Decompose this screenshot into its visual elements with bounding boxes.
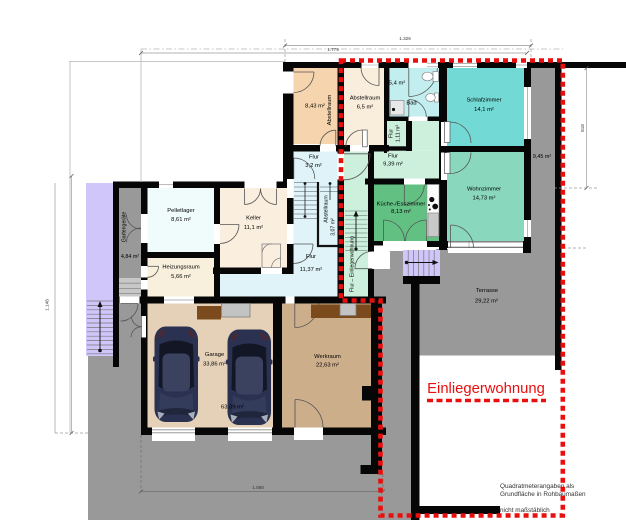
svg-text:1,11 m²: 1,11 m² bbox=[396, 125, 402, 142]
svg-text:22,63 m²: 22,63 m² bbox=[316, 363, 339, 369]
svg-text:14,73 m²: 14,73 m² bbox=[473, 196, 496, 202]
svg-text:818: 818 bbox=[580, 124, 585, 132]
svg-text:5,4 m²: 5,4 m² bbox=[389, 81, 405, 87]
svg-text:Pelletlager: Pelletlager bbox=[167, 208, 194, 214]
svg-text:3,07 m²: 3,07 m² bbox=[331, 218, 337, 236]
svg-text:Einliegerwohnung: Einliegerwohnung bbox=[427, 381, 545, 397]
svg-text:Garage: Garage bbox=[205, 352, 224, 358]
svg-text:63,09 m²: 63,09 m² bbox=[221, 405, 244, 411]
svg-text:33,86 m²: 33,86 m² bbox=[203, 362, 226, 368]
svg-text:Abstellraum: Abstellraum bbox=[350, 96, 381, 102]
svg-text:5,66 m²: 5,66 m² bbox=[171, 274, 191, 280]
svg-text:Flur: Flur bbox=[389, 129, 395, 138]
svg-text:Flur: Flur bbox=[388, 154, 398, 160]
svg-text:1.088: 1.088 bbox=[252, 485, 264, 490]
svg-text:Gartengeräte: Gartengeräte bbox=[122, 212, 128, 243]
svg-text:8,13 m²: 8,13 m² bbox=[391, 209, 411, 215]
svg-text:8,43 m²: 8,43 m² bbox=[305, 104, 325, 110]
svg-text:9,39 m²: 9,39 m² bbox=[383, 162, 403, 168]
svg-text:1.326: 1.326 bbox=[399, 36, 411, 41]
svg-text:11,37 m²: 11,37 m² bbox=[300, 267, 323, 273]
svg-text:29,22 m²: 29,22 m² bbox=[475, 299, 498, 305]
svg-text:Wohnzimmer: Wohnzimmer bbox=[467, 187, 501, 193]
svg-text:Heizungsraum: Heizungsraum bbox=[162, 265, 200, 271]
svg-text:1.779: 1.779 bbox=[327, 47, 339, 52]
svg-text:3,2 m²: 3,2 m² bbox=[305, 163, 321, 169]
svg-text:Werkraum: Werkraum bbox=[314, 354, 341, 360]
svg-text:Abstellraum: Abstellraum bbox=[324, 195, 330, 222]
svg-text:Bad: Bad bbox=[406, 101, 416, 107]
svg-text:14,1 m²: 14,1 m² bbox=[474, 107, 494, 113]
svg-text:1.148: 1.148 bbox=[45, 299, 50, 311]
svg-text:Grundfläche in Rohbaumaßen: Grundfläche in Rohbaumaßen bbox=[500, 491, 586, 498]
svg-text:Küche-/Esszimmer: Küche-/Esszimmer bbox=[377, 202, 426, 208]
svg-text:Abstellraum: Abstellraum bbox=[327, 95, 333, 126]
svg-text:Schlafzimmer: Schlafzimmer bbox=[466, 98, 501, 104]
svg-text:6,5 m²: 6,5 m² bbox=[357, 105, 373, 111]
svg-text:9,45 m²: 9,45 m² bbox=[533, 154, 551, 160]
svg-text:Quadratmeterangaben als: Quadratmeterangaben als bbox=[500, 483, 574, 490]
svg-text:Flur: Flur bbox=[306, 254, 316, 260]
svg-text:4,84 m²: 4,84 m² bbox=[121, 254, 139, 260]
svg-text:8,61 m²: 8,61 m² bbox=[171, 217, 191, 223]
svg-text:Terrasse: Terrasse bbox=[476, 288, 498, 294]
svg-text:nicht maßstäblich: nicht maßstäblich bbox=[500, 507, 550, 514]
svg-text:Flur: Flur bbox=[309, 155, 319, 161]
svg-text:Flur – Einliegerwohnung: Flur – Einliegerwohnung bbox=[350, 236, 356, 292]
svg-text:11,1 m²: 11,1 m² bbox=[244, 225, 263, 231]
svg-text:Keller: Keller bbox=[246, 216, 261, 222]
